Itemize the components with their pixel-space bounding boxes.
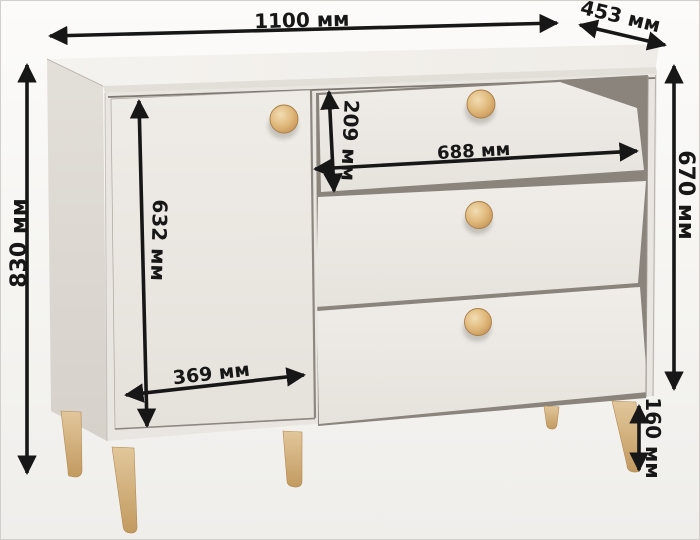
dim-leg-height-label: 160 мм: [641, 397, 665, 478]
drawer-2-knob: [466, 202, 493, 229]
dim-overall-width-label: 1100 мм: [254, 7, 350, 33]
dim-overall-height-label: 830 мм: [7, 198, 32, 288]
drawer-3-knob: [465, 309, 492, 336]
dim-door-height-label: 632 мм: [146, 199, 172, 281]
dim-body-height-label: 670 мм: [673, 150, 698, 240]
cabinet-left-side: [47, 59, 107, 441]
dim-drawer-width-label: 688 мм: [437, 139, 511, 164]
door-knob: [270, 105, 298, 133]
drawer-1-knob: [467, 90, 495, 118]
dimension-diagram: 1100 мм 453 мм 830 мм 670 мм 632 мм 369 …: [0, 0, 700, 540]
product-dimensions-image: 1100 мм 453 мм 830 мм 670 мм 632 мм 369 …: [0, 0, 700, 540]
